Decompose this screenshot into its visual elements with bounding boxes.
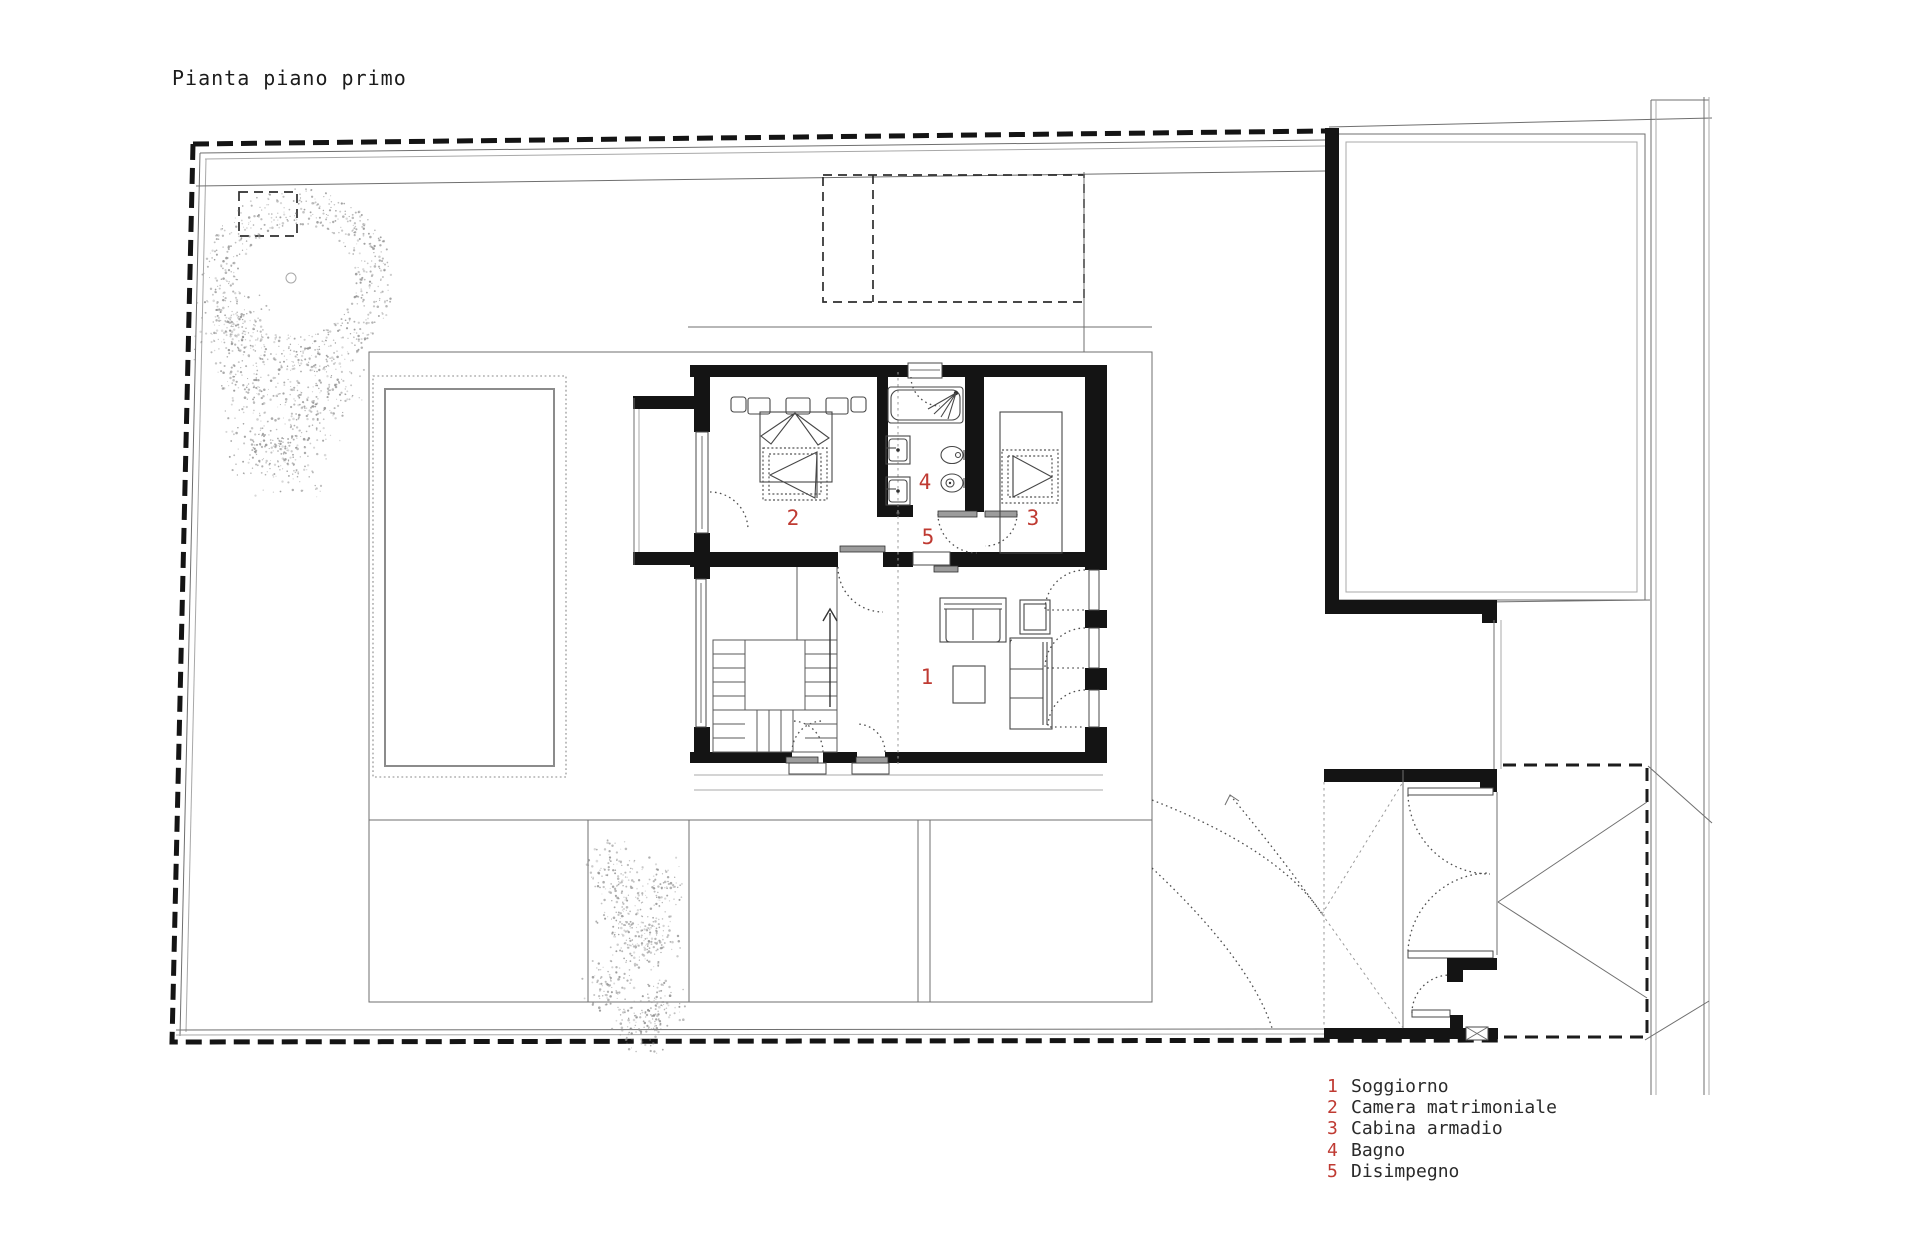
party-wall — [1325, 128, 1339, 606]
tree-trunk — [286, 273, 296, 283]
driveway-arc — [1152, 800, 1322, 914]
page-title: Pianta piano primo — [172, 66, 407, 90]
entry-door-leaf — [1412, 1010, 1450, 1017]
window-west-bedroom — [696, 432, 708, 533]
entry-door-arc — [1412, 975, 1450, 1013]
window-west-stairs — [696, 579, 706, 727]
shrub-stipple — [581, 839, 686, 1053]
window-north — [908, 363, 942, 378]
room-marker-cabina: 3 — [1027, 506, 1040, 530]
door-threshold — [789, 763, 826, 774]
room-marker-disimpegno: 5 — [922, 525, 935, 549]
coffee-table-icon — [953, 666, 985, 703]
toilet-icon — [941, 447, 964, 464]
chaise-sofa-icon — [1010, 638, 1052, 729]
pool-deck-edge — [373, 376, 566, 777]
wall-bath-closet — [965, 377, 984, 512]
entry-courtyard — [1152, 769, 1498, 1040]
driveway-arc — [1152, 868, 1272, 1028]
picture-frame-icon — [1020, 600, 1050, 634]
stairs-direction-arrow — [823, 609, 837, 707]
gate-swing-arc — [1408, 795, 1490, 874]
neighbor-building — [1325, 118, 1712, 769]
gate-leaf-bottom — [1408, 951, 1493, 958]
legend-label: Bagno — [1351, 1140, 1405, 1161]
pool-basin — [385, 389, 554, 766]
tree-canopy-stipple — [194, 188, 392, 497]
wardrobe-icon — [1000, 412, 1062, 553]
gate-swing-arc — [1408, 873, 1490, 951]
shower-door-arc — [911, 377, 940, 406]
pool — [373, 376, 566, 777]
driveway-arc — [1230, 795, 1322, 914]
sliding-door-leaf — [786, 757, 818, 763]
legend-label: Camera matrimoniale — [1351, 1097, 1557, 1118]
legend-number: 2 — [1327, 1097, 1338, 1118]
sofa-icon — [940, 598, 1006, 642]
tree-icon — [194, 188, 392, 497]
shower-icon — [888, 387, 963, 423]
hall-door-arcs — [896, 511, 1017, 553]
carport-roof-line — [1498, 802, 1647, 902]
room-marker-camera: 2 — [787, 506, 800, 530]
sliding-door-leaf — [934, 566, 958, 572]
sliding-door-leaf — [840, 546, 885, 552]
house-walls — [633, 363, 1107, 774]
bidet-icon — [941, 474, 964, 492]
legend-label: Cabina armadio — [1351, 1118, 1503, 1139]
legend-number: 1 — [1327, 1076, 1338, 1097]
bed-icon — [731, 397, 866, 482]
pergola-dashed-outline — [688, 172, 1152, 352]
balcony — [633, 396, 695, 565]
room-marker-soggiorno: 1 — [921, 665, 934, 689]
carport-roof-line — [1498, 902, 1647, 998]
legend: 1 Soggiorno 2 Camera matrimoniale 3 Cabi… — [1327, 1076, 1557, 1182]
room-marker-bagno: 4 — [919, 470, 932, 494]
legend-number: 3 — [1327, 1118, 1338, 1139]
site-boundary — [172, 131, 1505, 1042]
window-east — [1089, 570, 1099, 727]
stairs-icon — [713, 567, 837, 752]
legend-label: Soggiorno — [1351, 1076, 1449, 1097]
gate-leaf-top — [1408, 788, 1493, 795]
hall-threshold — [913, 552, 950, 565]
legend-number: 4 — [1327, 1140, 1338, 1161]
gate-post-box — [1466, 1027, 1488, 1040]
door-threshold — [852, 763, 889, 774]
road — [1645, 97, 1712, 1095]
floor-plan-page: Pianta piano primo — [0, 0, 1920, 1250]
floor-plan-drawing: Pianta piano primo — [0, 0, 1920, 1250]
bedroom-rug — [763, 448, 827, 500]
legend-label: Disimpegno — [1351, 1161, 1459, 1182]
carport — [1498, 765, 1647, 1037]
legend-number: 5 — [1327, 1161, 1338, 1182]
sliding-door-leaf — [856, 757, 888, 763]
bedroom-door-arc — [710, 492, 748, 530]
